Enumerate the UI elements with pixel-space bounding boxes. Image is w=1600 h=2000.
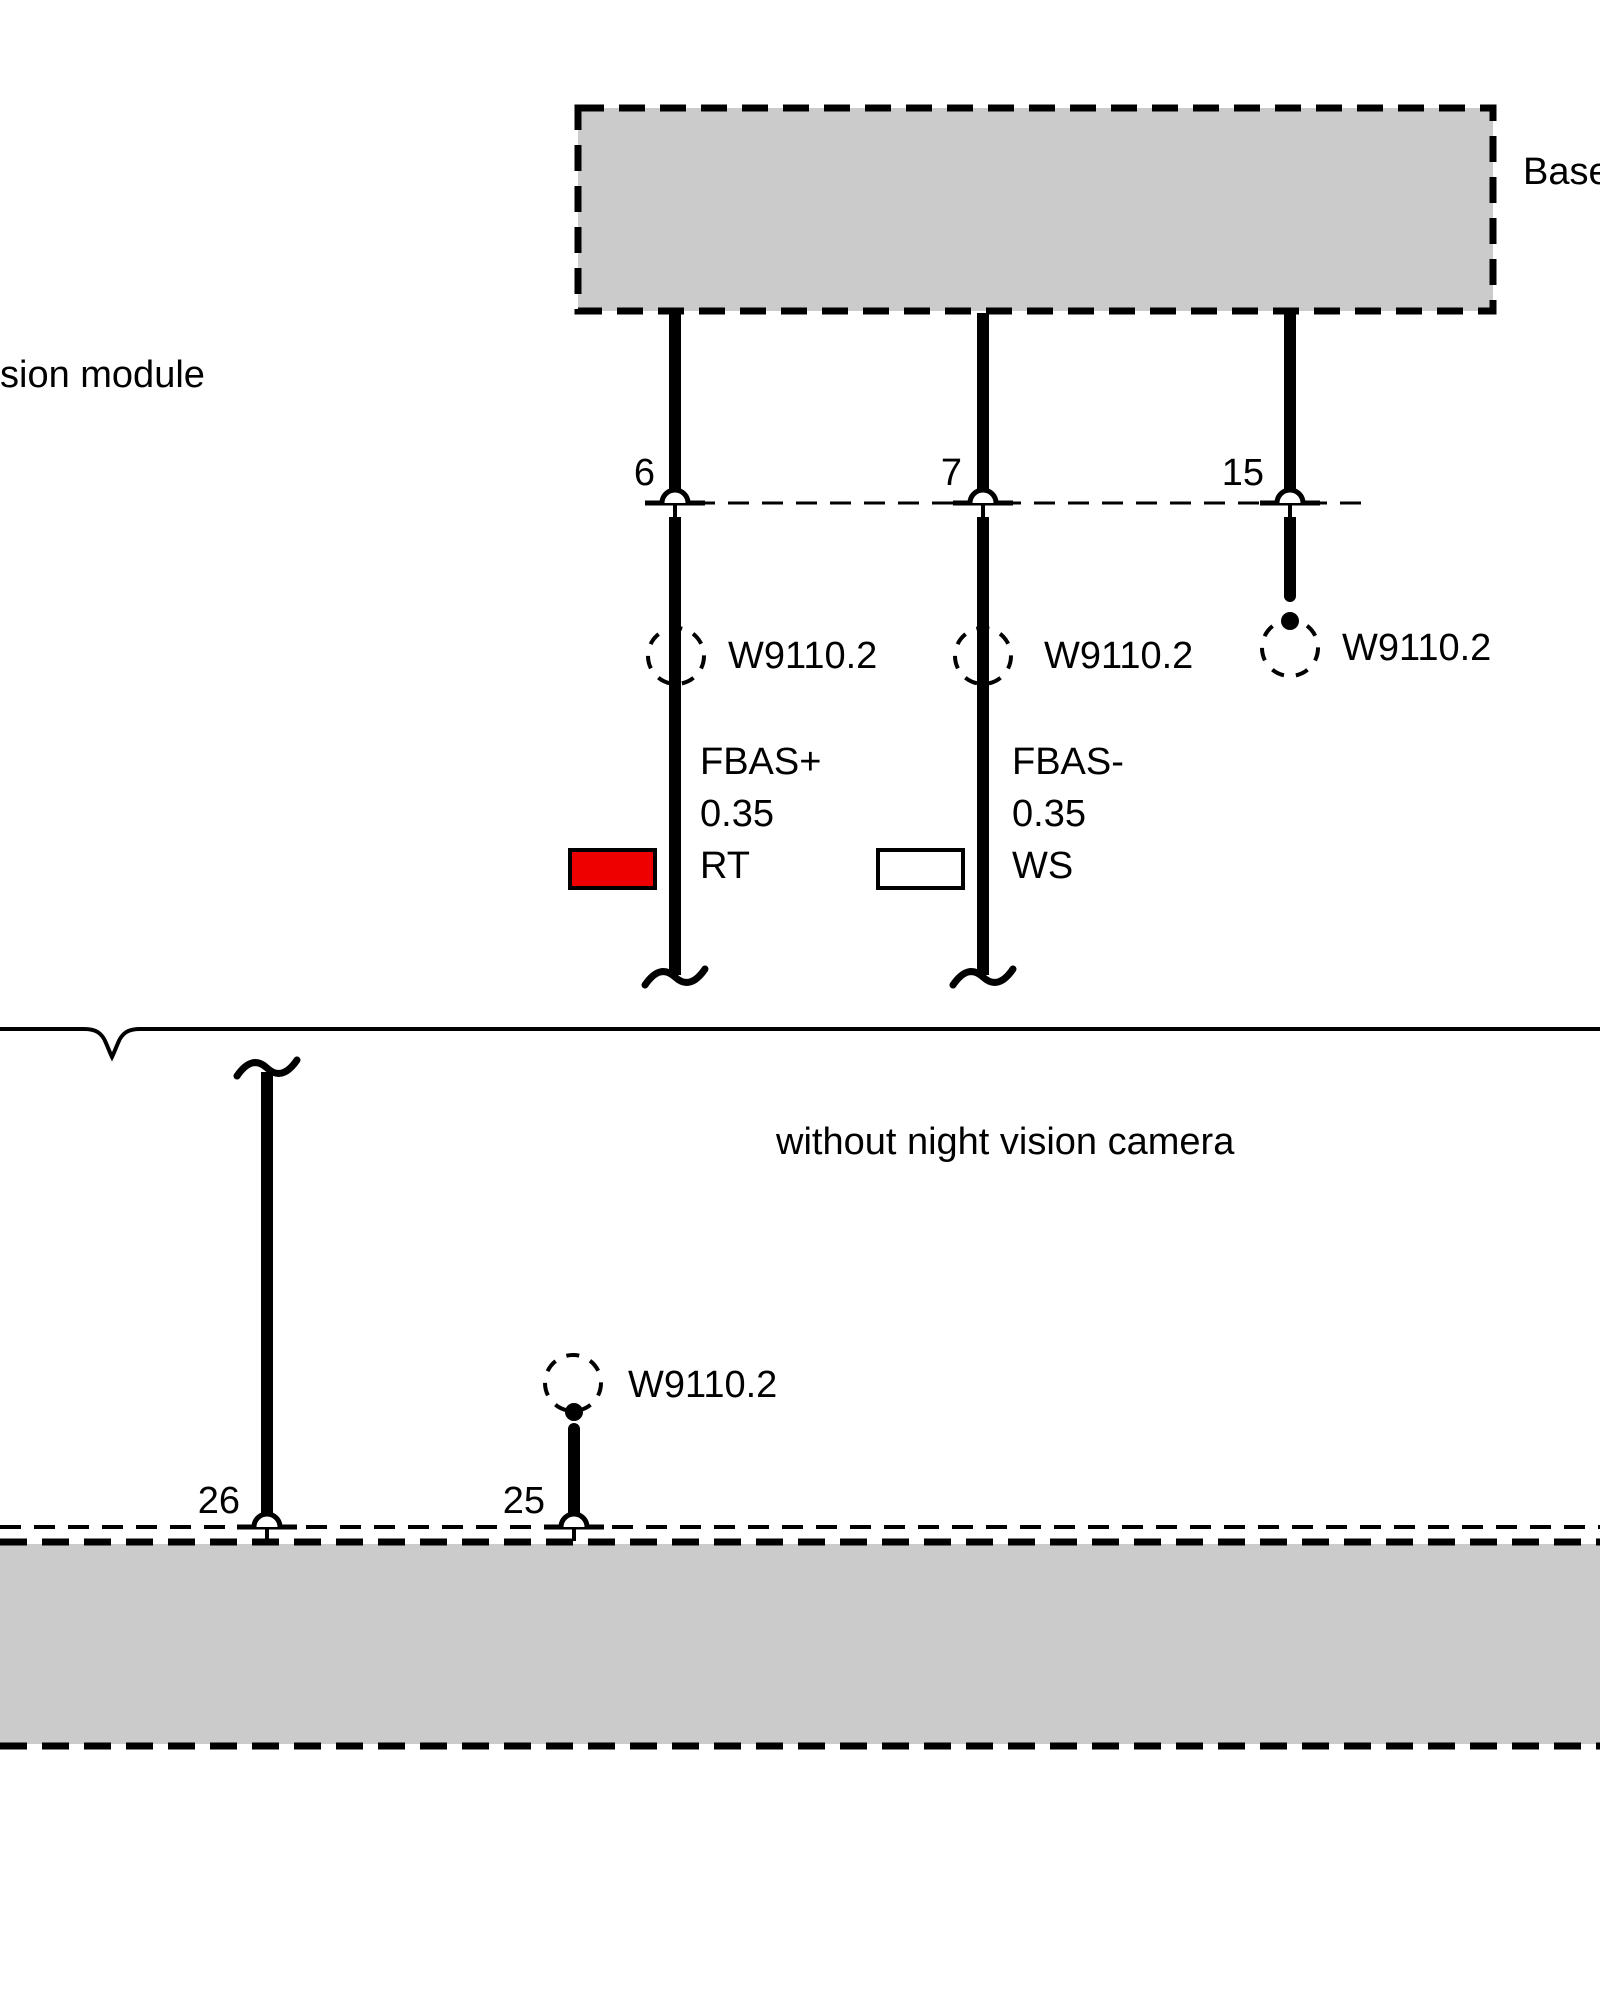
splice-label: W9110.2 xyxy=(1044,634,1193,678)
wire-cross-section: 0.35 xyxy=(1012,788,1124,840)
pin-number-26: 26 xyxy=(140,1479,240,1523)
wiring-diagram-canvas xyxy=(0,0,1600,2000)
pin-socket-symbol xyxy=(662,490,688,503)
pin-number-6: 6 xyxy=(555,451,655,495)
splice-label: W9110.2 xyxy=(728,634,877,678)
splice-symbol xyxy=(545,1355,601,1411)
wire-color-code: RT xyxy=(700,840,821,892)
base-module-box xyxy=(578,108,1493,311)
pin-socket-symbol xyxy=(254,1514,280,1527)
lower-module-box xyxy=(0,1544,1600,1744)
pin-number-7: 7 xyxy=(862,451,962,495)
wire-label-fbas-minus: FBAS- 0.35 WS xyxy=(1012,736,1124,892)
wire-color-swatch-ws xyxy=(878,850,963,888)
base-module-label: Base xyxy=(1523,150,1600,194)
section-divider-brace xyxy=(0,1029,1600,1057)
pin-number-15: 15 xyxy=(1164,451,1264,495)
wire-color-swatch-rt xyxy=(570,850,655,888)
pin-number-25: 25 xyxy=(445,1479,545,1523)
wire-stub-cap xyxy=(568,1423,580,1435)
wiring-diagram-page: Base sion module 6 7 15 W9110.2 W9110.2 … xyxy=(0,0,1600,2000)
wire-stub-cap xyxy=(1284,590,1296,602)
wire-label-fbas-plus: FBAS+ 0.35 RT xyxy=(700,736,821,892)
wire-color-code: WS xyxy=(1012,840,1124,892)
wire-cross-section: 0.35 xyxy=(700,788,821,840)
pin-socket-symbol xyxy=(970,490,996,503)
pin-socket-symbol xyxy=(1277,490,1303,503)
splice-label: W9110.2 xyxy=(628,1363,777,1407)
left-module-label: sion module xyxy=(0,353,205,397)
wire-signal: FBAS- xyxy=(1012,736,1124,788)
wire-signal: FBAS+ xyxy=(700,736,821,788)
pin-socket-symbol xyxy=(561,1514,587,1527)
splice-label: W9110.2 xyxy=(1342,626,1491,670)
variant-note: without night vision camera xyxy=(776,1120,1234,1164)
